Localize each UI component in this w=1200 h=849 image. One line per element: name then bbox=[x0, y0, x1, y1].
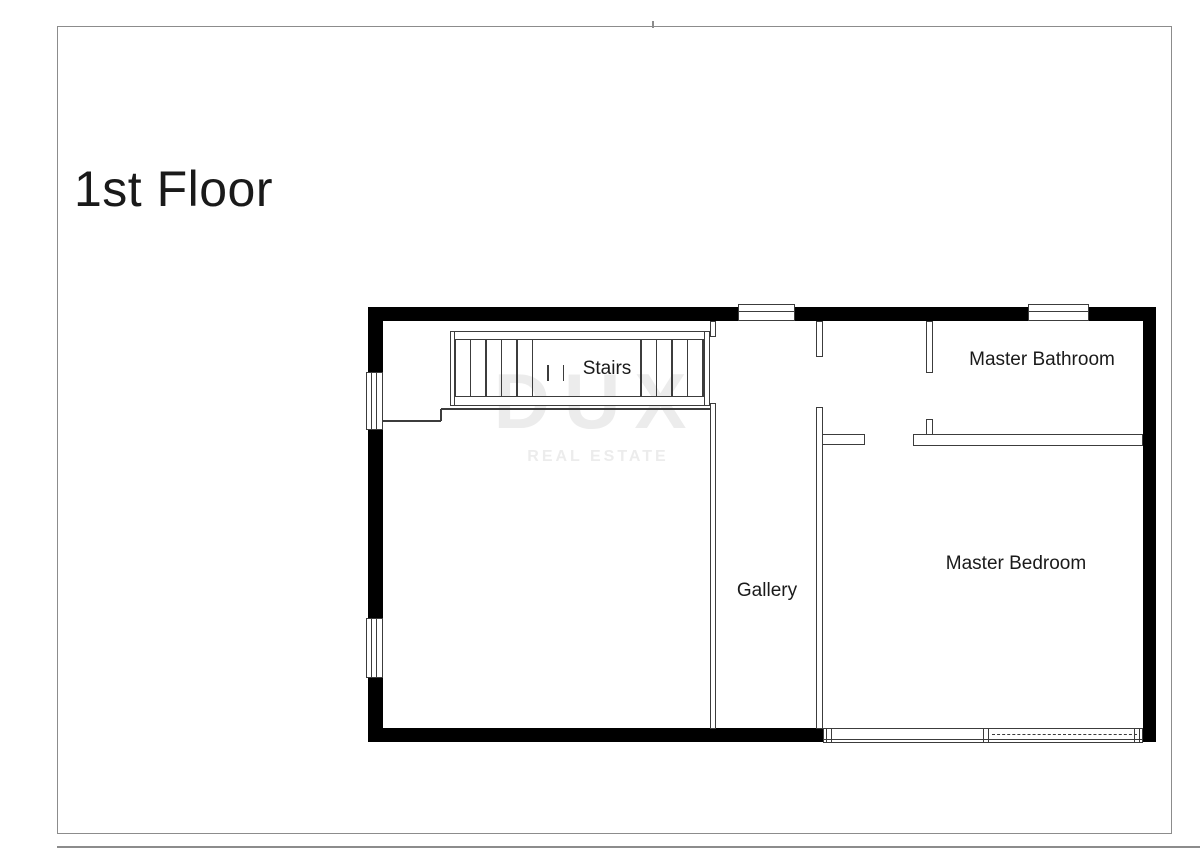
left-window-2 bbox=[366, 618, 383, 678]
stair-tread-line bbox=[470, 340, 472, 396]
window-pane-line bbox=[739, 311, 794, 312]
stair-tread-line bbox=[702, 340, 704, 396]
stair-tread-line bbox=[485, 340, 487, 396]
bottom-glass-wall bbox=[823, 728, 1143, 743]
top-window-2 bbox=[1028, 304, 1089, 321]
stairs-label: Stairs bbox=[557, 358, 657, 380]
label-gallery: Gallery bbox=[717, 580, 817, 602]
floorplan-page: 1st Floor DUX REAL ESTATE bbox=[0, 0, 1200, 849]
stair-tread-line bbox=[532, 340, 534, 396]
window-pane-line bbox=[376, 373, 377, 429]
stair-tread-line bbox=[687, 340, 689, 396]
floor-plan: DUX REAL ESTATE bbox=[0, 0, 1200, 849]
landing-notch-v bbox=[440, 409, 442, 421]
top-window-1 bbox=[738, 304, 795, 321]
gallery-wall-left-stub bbox=[710, 321, 716, 337]
stair-tread-line bbox=[547, 365, 549, 381]
window-pane-line bbox=[371, 619, 372, 677]
bathroom-entry-stub bbox=[926, 321, 933, 373]
glass-divider bbox=[983, 729, 989, 742]
glass-cap-left bbox=[826, 729, 832, 742]
gallery-wall-branch bbox=[822, 434, 865, 445]
left-window-1 bbox=[366, 372, 383, 430]
stair-tread-line bbox=[671, 340, 673, 396]
bathroom-door-jamb bbox=[926, 419, 933, 435]
wall-bottom bbox=[368, 728, 823, 742]
gallery-wall-right-stub bbox=[816, 321, 823, 357]
landing-notch-h bbox=[383, 420, 441, 422]
sliding-door-dashed-line bbox=[992, 734, 1137, 735]
stair-tread-line bbox=[454, 340, 456, 396]
window-pane-line bbox=[376, 619, 377, 677]
label-master-bedroom: Master Bedroom bbox=[916, 553, 1116, 575]
wall-right bbox=[1143, 307, 1156, 742]
bathroom-bottom-wall bbox=[913, 434, 1143, 446]
watermark-tagline: REAL ESTATE bbox=[448, 448, 748, 466]
stairs-top-rail bbox=[450, 331, 710, 340]
window-pane-line bbox=[1029, 311, 1088, 312]
glass-cap-right bbox=[1134, 729, 1140, 742]
gallery-wall-right bbox=[816, 407, 823, 729]
window-pane-line bbox=[371, 373, 372, 429]
stair-tread-line bbox=[501, 340, 503, 396]
gallery-wall-left bbox=[710, 403, 716, 729]
label-master-bathroom: Master Bathroom bbox=[942, 349, 1142, 371]
stairs-bottom-rail bbox=[450, 396, 710, 406]
stair-tread-line bbox=[516, 340, 518, 396]
landing-edge-line bbox=[441, 408, 710, 410]
